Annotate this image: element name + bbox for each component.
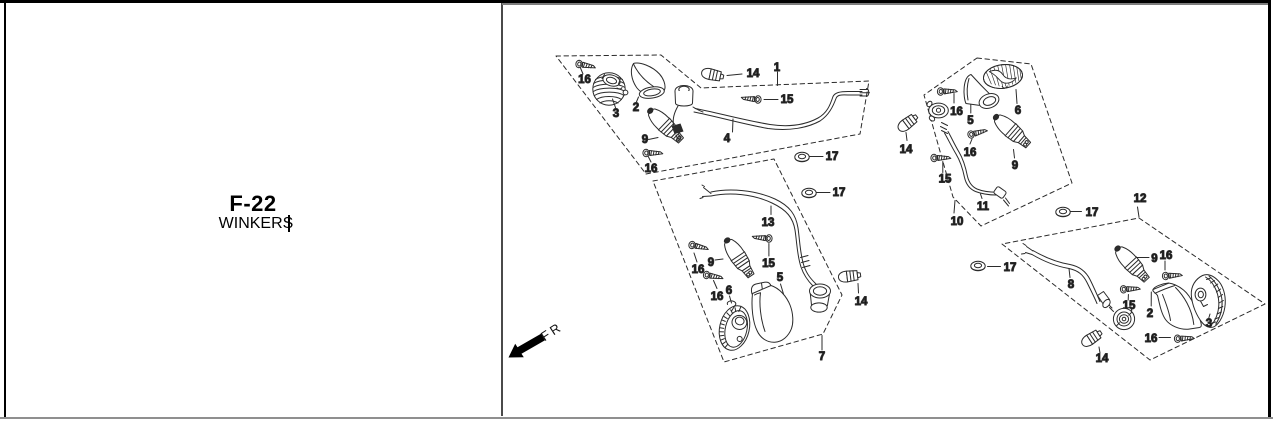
svg-text:16: 16 [645,163,658,175]
svg-text:15: 15 [762,258,775,270]
svg-text:1: 1 [774,62,781,74]
svg-text:9: 9 [1151,253,1157,265]
svg-text:8: 8 [1068,279,1075,291]
svg-text:16: 16 [578,74,591,86]
svg-text:7: 7 [819,351,825,363]
svg-text:16: 16 [964,147,977,159]
svg-text:17: 17 [826,151,839,163]
svg-text:16: 16 [950,106,963,118]
svg-text:17: 17 [1004,262,1017,274]
svg-text:15: 15 [939,174,952,186]
svg-text:6: 6 [1015,105,1021,117]
svg-text:2: 2 [633,102,639,114]
svg-text:12: 12 [1134,193,1147,205]
svg-text:13: 13 [762,217,775,229]
svg-text:2: 2 [1147,308,1153,320]
svg-text:9: 9 [708,257,714,269]
svg-text:5: 5 [967,115,974,127]
svg-text:15: 15 [781,94,794,106]
svg-text:3: 3 [1206,318,1212,330]
svg-text:5: 5 [777,272,784,284]
svg-text:9: 9 [642,134,648,146]
svg-text:14: 14 [747,68,760,80]
svg-text:10: 10 [951,216,964,228]
svg-text:17: 17 [1086,207,1099,219]
svg-text:11: 11 [977,201,990,213]
svg-text:16: 16 [692,264,705,276]
svg-text:14: 14 [1096,353,1109,365]
svg-text:14: 14 [900,144,913,156]
svg-text:14: 14 [855,296,868,308]
svg-text:16: 16 [1145,333,1158,345]
svg-text:16: 16 [711,291,724,303]
svg-text:17: 17 [833,187,846,199]
svg-text:6: 6 [726,285,732,297]
svg-text:16: 16 [1160,250,1173,262]
svg-text:9: 9 [1012,160,1018,172]
svg-text:3: 3 [613,108,619,120]
svg-text:4: 4 [724,133,731,145]
